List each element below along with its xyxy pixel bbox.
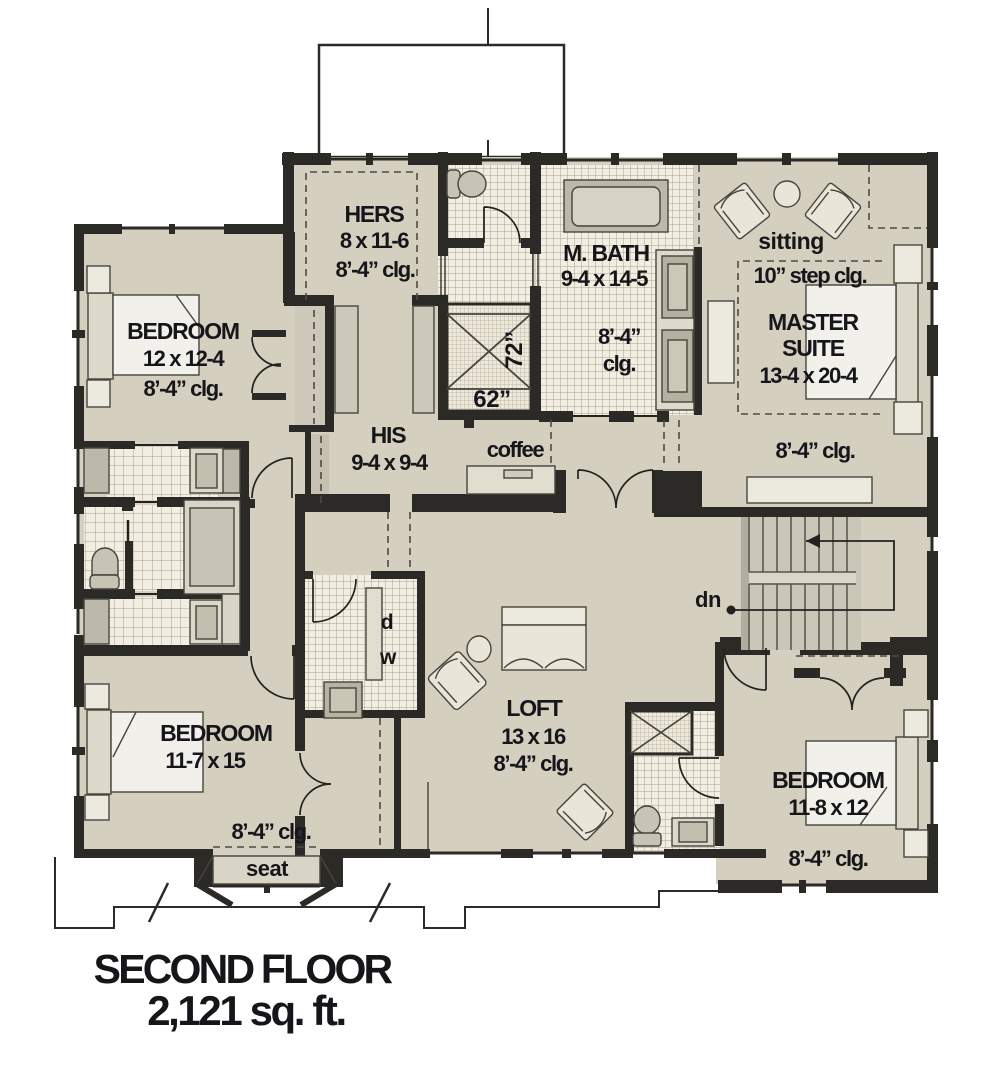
svg-text:SECOND FLOOR: SECOND FLOOR [94, 946, 393, 992]
svg-text:72”: 72” [501, 331, 528, 369]
svg-text:SUITE: SUITE [782, 335, 845, 361]
svg-text:M. BATH: M. BATH [563, 240, 649, 266]
svg-text:8 x 11-6: 8 x 11-6 [340, 228, 409, 253]
svg-text:62”: 62” [473, 386, 511, 413]
svg-text:9-4 x 9-4: 9-4 x 9-4 [351, 450, 429, 475]
svg-text:11-8 x 12: 11-8 x 12 [788, 795, 868, 820]
svg-text:dn: dn [695, 587, 721, 612]
svg-text:BEDROOM: BEDROOM [160, 720, 272, 746]
svg-text:seat: seat [246, 856, 289, 881]
svg-text:sitting: sitting [758, 228, 824, 254]
svg-text:8’-4” clg.: 8’-4” clg. [336, 257, 415, 282]
svg-text:8’-4” clg.: 8’-4” clg. [776, 438, 855, 463]
svg-text:8’-4” clg.: 8’-4” clg. [232, 819, 311, 844]
svg-text:coffee: coffee [487, 437, 545, 462]
svg-text:BEDROOM: BEDROOM [127, 318, 239, 344]
svg-text:8’-4”: 8’-4” [598, 324, 640, 349]
svg-text:11-7 x 15: 11-7 x 15 [165, 748, 245, 773]
svg-text:HIS: HIS [371, 422, 407, 448]
svg-text:MASTER: MASTER [768, 309, 860, 335]
svg-text:2,121 sq. ft.: 2,121 sq. ft. [147, 987, 345, 1034]
svg-text:8’-4” clg.: 8’-4” clg. [144, 376, 223, 401]
svg-text:HERS: HERS [344, 201, 404, 227]
svg-text:LOFT: LOFT [506, 695, 562, 721]
svg-text:10” step clg.: 10” step clg. [754, 263, 867, 288]
svg-text:clg.: clg. [603, 351, 636, 376]
svg-text:w: w [379, 646, 397, 669]
svg-text:13 x 16: 13 x 16 [501, 724, 566, 749]
svg-text:8’-4” clg.: 8’-4” clg. [494, 751, 573, 776]
svg-text:9-4 x 14-5: 9-4 x 14-5 [561, 266, 648, 291]
svg-text:13-4 x 20-4: 13-4 x 20-4 [759, 363, 858, 388]
svg-text:8’-4” clg.: 8’-4” clg. [789, 846, 868, 871]
svg-text:BEDROOM: BEDROOM [772, 767, 884, 793]
svg-text:d: d [381, 611, 393, 634]
svg-text:12 x 12-4: 12 x 12-4 [143, 346, 226, 371]
